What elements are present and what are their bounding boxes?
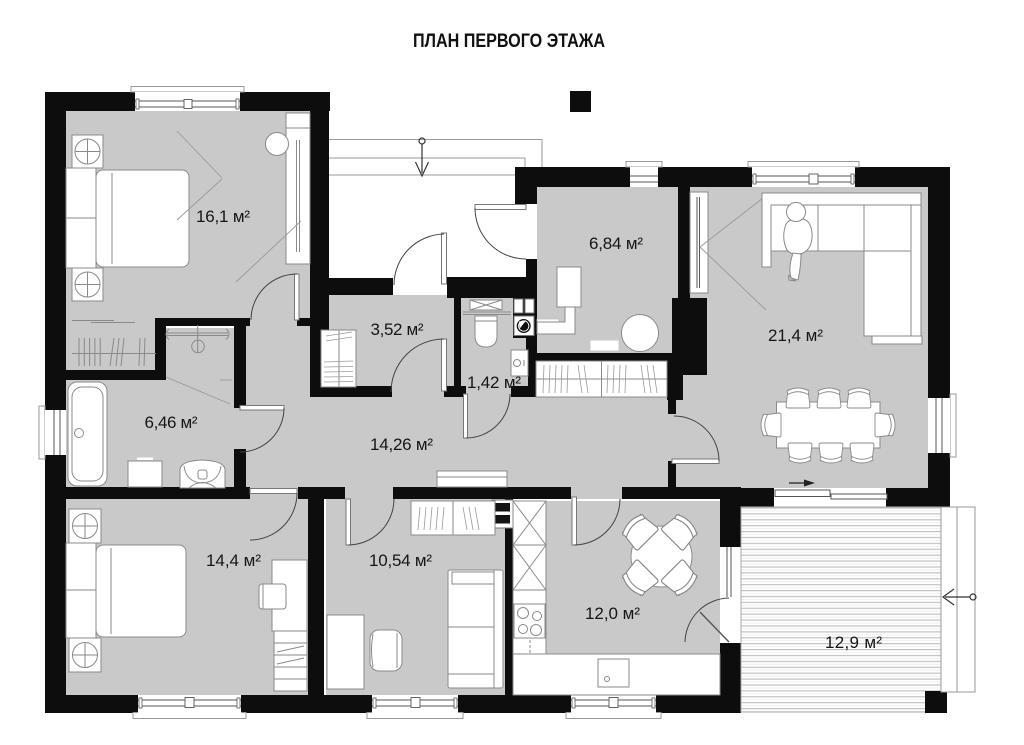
svg-text:21,4 м²: 21,4 м² — [768, 326, 823, 345]
svg-text:12,0 м²: 12,0 м² — [585, 604, 640, 623]
svg-text:6,84 м²: 6,84 м² — [589, 234, 643, 253]
svg-text:ПЛАН ПЕРВОГО ЭТАЖА: ПЛАН ПЕРВОГО ЭТАЖА — [413, 31, 605, 52]
svg-text:1,42 м²: 1,42 м² — [467, 373, 521, 392]
svg-text:16,1 м²: 16,1 м² — [196, 207, 250, 226]
svg-text:14,26 м²: 14,26 м² — [370, 435, 433, 454]
svg-text:10,54 м²: 10,54 м² — [369, 551, 432, 570]
svg-text:14,4 м²: 14,4 м² — [206, 551, 261, 570]
svg-text:12,9 м²: 12,9 м² — [825, 633, 882, 652]
svg-text:3,52 м²: 3,52 м² — [371, 320, 424, 339]
svg-text:6,46 м²: 6,46 м² — [145, 413, 198, 432]
